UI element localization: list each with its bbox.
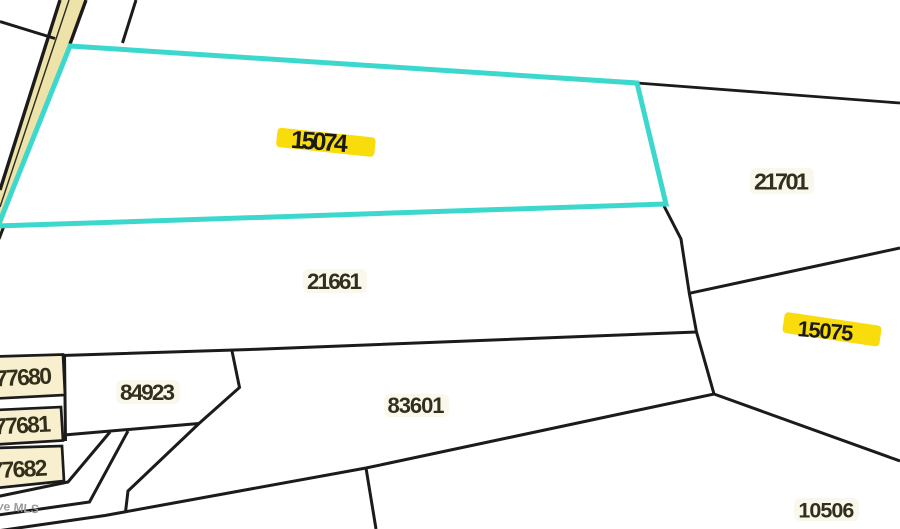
svg-text:84923: 84923 (120, 380, 175, 405)
svg-text:10506: 10506 (798, 499, 854, 523)
svg-text:15074: 15074 (290, 126, 349, 158)
svg-text:15075: 15075 (797, 316, 855, 346)
svg-text:83601: 83601 (388, 393, 445, 418)
svg-text:77682: 77682 (0, 455, 48, 484)
svg-text:77680: 77680 (0, 363, 53, 392)
svg-text:77681: 77681 (0, 411, 52, 440)
svg-text:21661: 21661 (307, 269, 362, 294)
svg-text:21701: 21701 (754, 169, 809, 195)
